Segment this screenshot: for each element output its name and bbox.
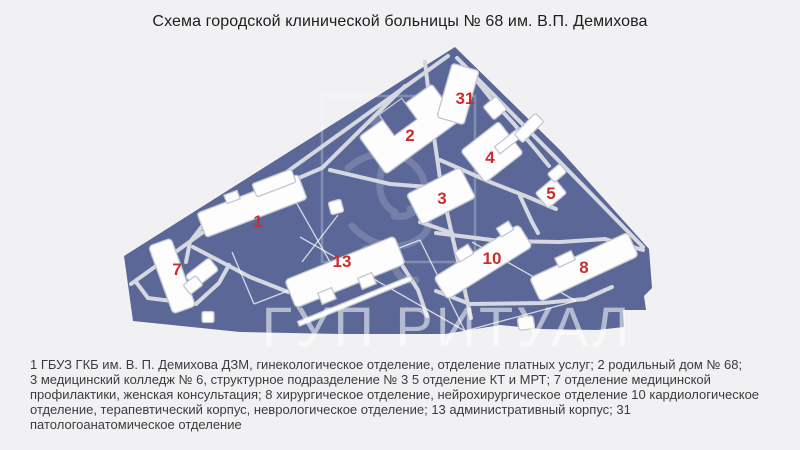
building-2-label: 2: [405, 126, 414, 145]
building-3-label: 3: [437, 189, 446, 208]
legend-line-1: 1 ГБУЗ ГКБ им. В. П. Демихова ДЗМ, гинек…: [30, 357, 759, 372]
small-building-f: [328, 199, 344, 215]
legend-line-5: патологоанатомическое отделение: [30, 417, 759, 432]
building-7-label: 7: [172, 260, 181, 279]
building-10-label: 10: [483, 249, 502, 268]
small-building-d: [202, 312, 214, 323]
legend-line-4: отделение, терапевтический корпус, невро…: [30, 402, 759, 417]
building-8-label: 8: [579, 258, 588, 277]
building-31-label: 31: [456, 89, 475, 108]
building-5-label: 5: [546, 184, 555, 203]
map-legend: 1 ГБУЗ ГКБ им. В. П. Демихова ДЗМ, гинек…: [30, 357, 759, 432]
page: Схема городской клинической больницы № 6…: [0, 0, 800, 450]
legend-line-2: 3 медицинский колледж № 6, структурное п…: [30, 372, 759, 387]
building-4-label: 4: [485, 148, 495, 167]
map-watermark: ГУП РИТУАЛ: [262, 295, 633, 358]
building-13-label: 13: [333, 252, 352, 271]
building-1-label: 1: [253, 212, 262, 231]
legend-line-3: профилактики, женская консультация; 8 хи…: [30, 387, 759, 402]
